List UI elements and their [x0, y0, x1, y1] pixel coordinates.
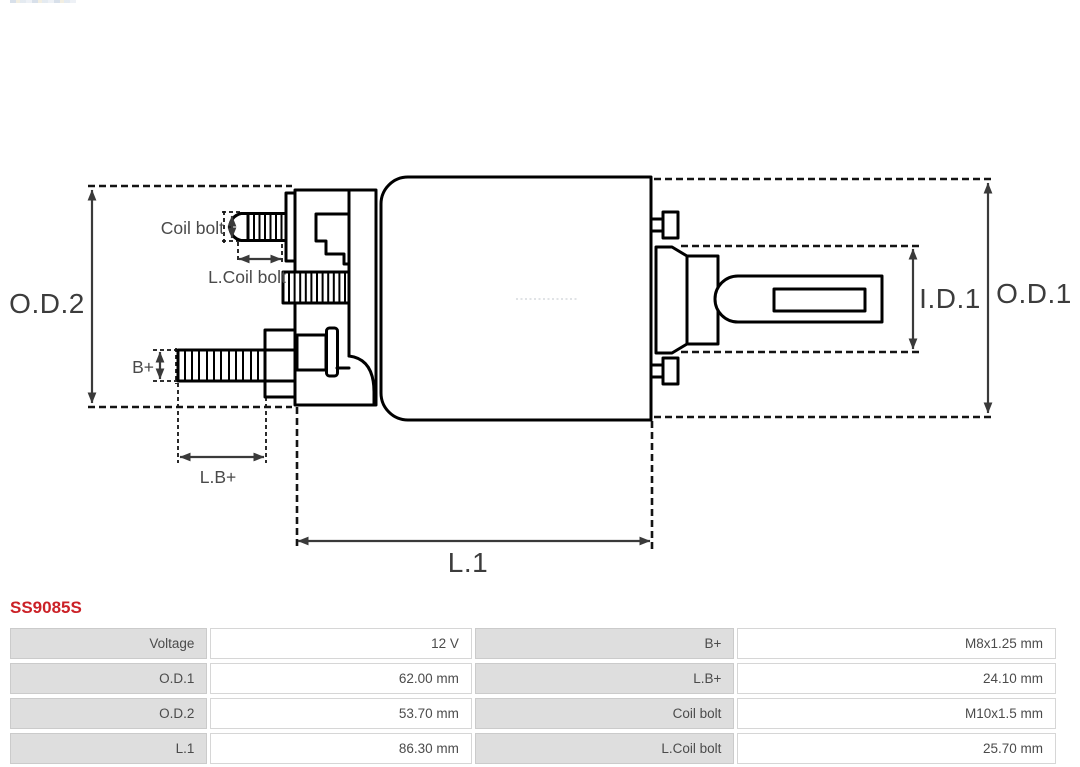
spec-value: M8x1.25 mm [737, 628, 1056, 659]
spec-label: Coil bolt [475, 698, 735, 729]
dim-label-l1: L.1 [448, 547, 488, 578]
solenoid-diagram: O.D.2 O.D.1 I.D.1 L.1 Coil bolt L.Coil b… [0, 0, 1080, 592]
dim-label-od2: O.D.2 [9, 288, 85, 319]
spec-label: O.D.1 [10, 663, 207, 694]
spec-label: B+ [475, 628, 735, 659]
spec-label: L.Coil bolt [475, 733, 735, 764]
spec-value: 53.70 mm [210, 698, 472, 729]
table-row: Voltage 12 V B+ M8x1.25 mm [10, 628, 1056, 659]
spec-value: 25.70 mm [737, 733, 1056, 764]
spec-label: L.B+ [475, 663, 735, 694]
plunger-collar [656, 247, 687, 353]
dashed-guide-lines [153, 211, 282, 463]
spec-value: 86.30 mm [210, 733, 472, 764]
spec-label: O.D.2 [10, 698, 207, 729]
dim-label-l-coil-bolt: L.Coil bolt [208, 267, 286, 287]
spec-label: L.1 [10, 733, 207, 764]
spec-value: 24.10 mm [737, 663, 1056, 694]
table-row: L.1 86.30 mm L.Coil bolt 25.70 mm [10, 733, 1056, 764]
dim-label-coil-bolt: Coil bolt [161, 218, 224, 238]
spec-value: 62.00 mm [210, 663, 472, 694]
dim-label-id1: I.D.1 [919, 283, 981, 314]
dim-label-l-b-plus: L.B+ [200, 467, 237, 487]
dim-label-od1: O.D.1 [996, 278, 1072, 309]
spec-value: M10x1.5 mm [737, 698, 1056, 729]
table-row: O.D.2 53.70 mm Coil bolt M10x1.5 mm [10, 698, 1056, 729]
product-spec-page: O.D.2 O.D.1 I.D.1 L.1 Coil bolt L.Coil b… [0, 0, 1080, 767]
terminal-tab-top [663, 212, 678, 238]
spec-value: 12 V [210, 628, 472, 659]
spec-table: Voltage 12 V B+ M8x1.25 mm O.D.1 62.00 m… [7, 624, 1059, 767]
part-number: SS9085S [10, 598, 82, 618]
b-plus-spacer [297, 335, 326, 370]
spec-label: Voltage [10, 628, 207, 659]
plunger-collar-ring [687, 256, 718, 344]
terminal-tab-bottom [663, 358, 678, 384]
table-row: O.D.1 62.00 mm L.B+ 24.10 mm [10, 663, 1056, 694]
plunger-slot [774, 289, 865, 311]
b-plus-hex-nut [265, 330, 295, 397]
dim-label-b-plus: B+ [132, 357, 154, 377]
